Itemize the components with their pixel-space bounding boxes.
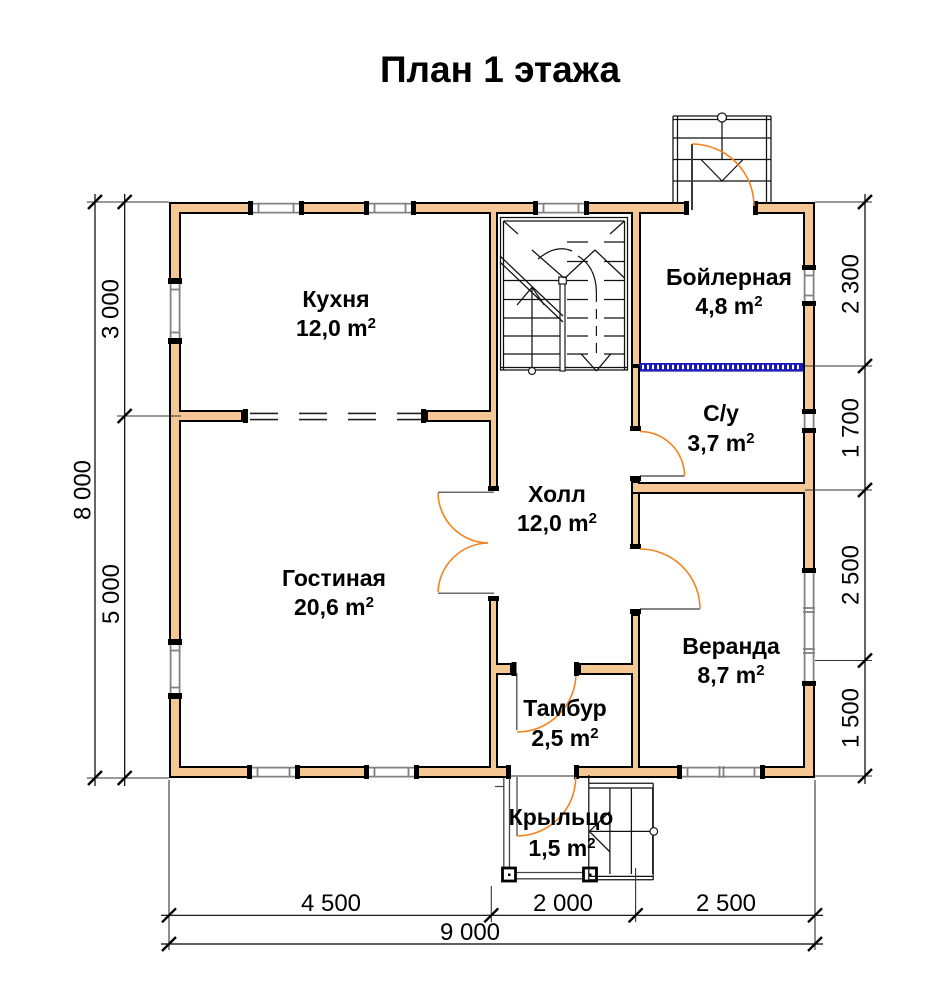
svg-text:8 000: 8 000 — [69, 460, 96, 520]
svg-text:2 500: 2 500 — [696, 890, 756, 917]
svg-text:3 000: 3 000 — [97, 279, 124, 339]
svg-text:20,6 m2: 20,6 m2 — [294, 594, 374, 620]
svg-text:3,7 m2: 3,7 m2 — [687, 430, 754, 456]
svg-text:2 500: 2 500 — [837, 545, 864, 605]
svg-text:4,8 m2: 4,8 m2 — [695, 293, 762, 319]
svg-text:Холл: Холл — [528, 481, 586, 507]
svg-text:План 1 этажа: План 1 этажа — [380, 49, 620, 90]
svg-text:2,5 m2: 2,5 m2 — [531, 725, 598, 751]
svg-text:Крыльцо: Крыльцо — [509, 804, 614, 830]
svg-text:2 300: 2 300 — [837, 254, 864, 314]
svg-text:9 000: 9 000 — [440, 919, 500, 946]
svg-text:Кухня: Кухня — [302, 286, 369, 312]
svg-text:8,7 m2: 8,7 m2 — [697, 662, 764, 688]
svg-text:5 000: 5 000 — [98, 564, 125, 624]
svg-text:Бойлерная: Бойлерная — [666, 264, 792, 290]
svg-text:1 700: 1 700 — [837, 398, 864, 458]
svg-text:4 500: 4 500 — [301, 890, 361, 917]
svg-text:С/у: С/у — [703, 400, 739, 426]
svg-text:2 000: 2 000 — [533, 890, 593, 917]
svg-text:Тамбур: Тамбур — [523, 695, 606, 721]
svg-text:Веранда: Веранда — [682, 633, 780, 659]
svg-text:1 500: 1 500 — [837, 688, 864, 748]
svg-text:12,0 m2: 12,0 m2 — [296, 315, 376, 341]
svg-text:12,0 m2: 12,0 m2 — [517, 510, 597, 536]
svg-text:Гостиная: Гостиная — [282, 565, 386, 591]
svg-text:1,5 m2: 1,5 m2 — [528, 835, 595, 861]
